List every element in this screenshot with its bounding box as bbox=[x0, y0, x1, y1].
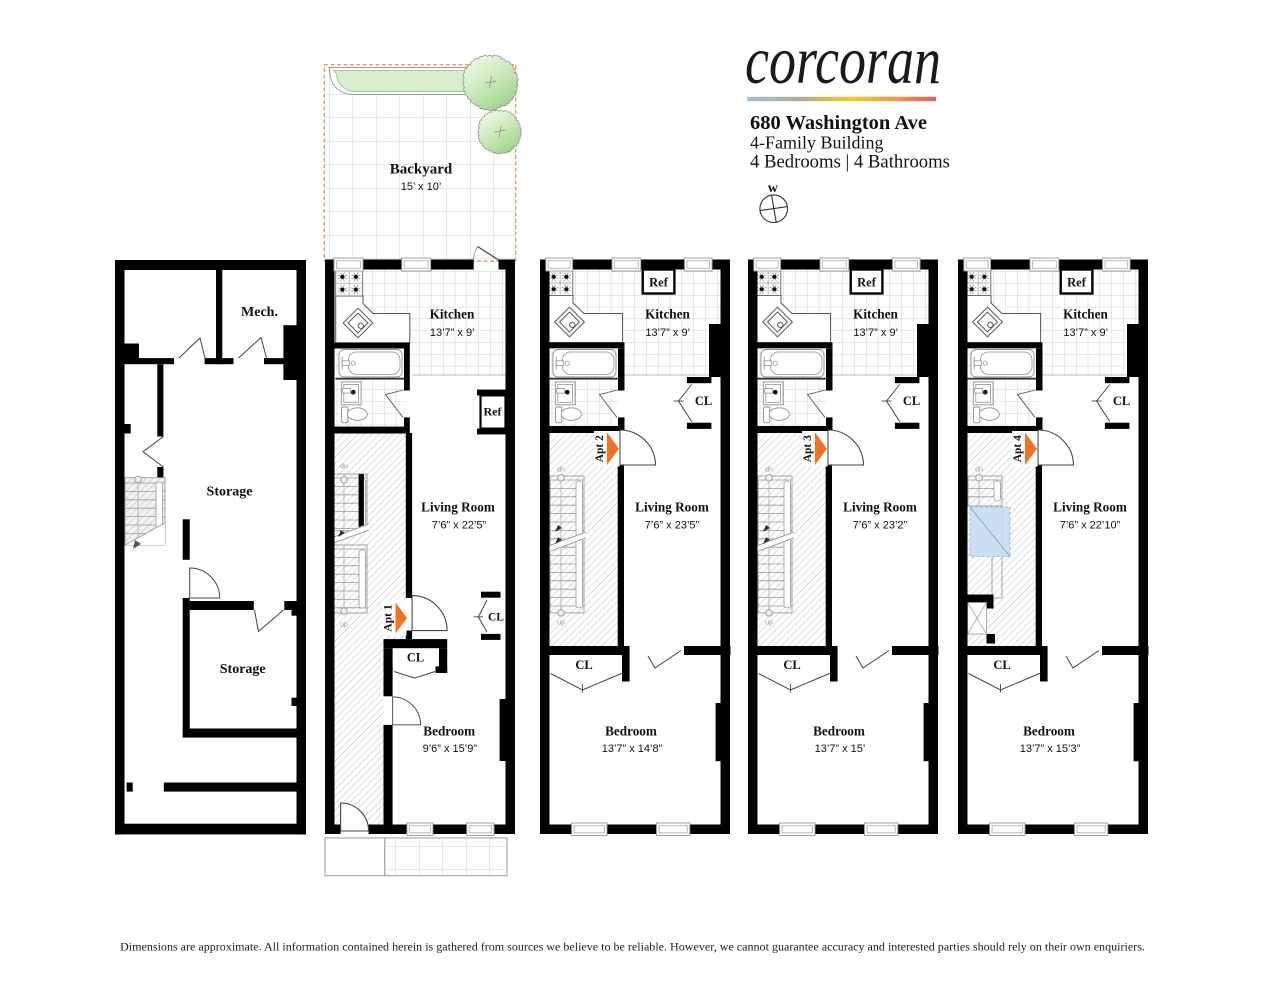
svg-text:7’6” x 22’5”: 7’6” x 22’5” bbox=[432, 520, 487, 532]
svg-text:CL: CL bbox=[575, 658, 592, 672]
svg-text:4-Family Building: 4-Family Building bbox=[750, 133, 884, 153]
svg-text:Bedroom: Bedroom bbox=[423, 724, 475, 739]
svg-text:13’7” x 9’: 13’7” x 9’ bbox=[1063, 327, 1108, 339]
svg-text:13’7” x 9’: 13’7” x 9’ bbox=[853, 327, 898, 339]
svg-text:Ref: Ref bbox=[649, 276, 669, 290]
svg-text:up: up bbox=[557, 620, 565, 627]
svg-text:corcoran: corcoran bbox=[745, 22, 941, 98]
svg-text:Kitchen: Kitchen bbox=[853, 307, 898, 322]
svg-text:13’7” x 9’: 13’7” x 9’ bbox=[430, 327, 475, 339]
svg-text:Ref: Ref bbox=[484, 405, 503, 419]
svg-text:4 Bedrooms | 4 Bathrooms: 4 Bedrooms | 4 Bathrooms bbox=[750, 152, 950, 173]
svg-text:CL: CL bbox=[903, 394, 920, 408]
svg-text:13’7” x 15’: 13’7” x 15’ bbox=[815, 743, 866, 755]
svg-text:Backyard: Backyard bbox=[390, 162, 453, 178]
svg-text:Living Room: Living Room bbox=[421, 500, 495, 515]
svg-text:up: up bbox=[765, 620, 773, 627]
svg-text:Kitchen: Kitchen bbox=[430, 307, 475, 322]
svg-text:Kitchen: Kitchen bbox=[645, 307, 690, 322]
svg-text:Apt 4: Apt 4 bbox=[1012, 435, 1024, 462]
svg-text:CL: CL bbox=[695, 394, 712, 408]
svg-text:CL: CL bbox=[1113, 394, 1130, 408]
svg-text:Living Room: Living Room bbox=[635, 500, 709, 515]
svg-text:7’6” x 23’2”: 7’6” x 23’2” bbox=[853, 520, 908, 532]
svg-text:13’7” x 14’8”: 13’7” x 14’8” bbox=[602, 743, 663, 755]
svg-text:CL: CL bbox=[488, 612, 504, 624]
svg-text:13’7” x 9’: 13’7” x 9’ bbox=[645, 327, 690, 339]
svg-text:Storage: Storage bbox=[207, 485, 253, 500]
svg-text:CL: CL bbox=[407, 651, 424, 665]
svg-text:7’6” x 23’5”: 7’6” x 23’5” bbox=[645, 520, 700, 532]
svg-text:Dimensions are approximate. Al: Dimensions are approximate. All informat… bbox=[120, 940, 1145, 954]
svg-text:Bedroom: Bedroom bbox=[1023, 724, 1075, 739]
svg-text:9’6” x 15’9”: 9’6” x 15’9” bbox=[423, 743, 478, 755]
svg-text:Apt 3: Apt 3 bbox=[802, 435, 814, 462]
svg-text:Kitchen: Kitchen bbox=[1063, 307, 1108, 322]
svg-text:w: w bbox=[768, 181, 779, 196]
svg-text:Mech.: Mech. bbox=[241, 305, 278, 320]
svg-text:Ref: Ref bbox=[857, 276, 877, 290]
svg-text:dn: dn bbox=[765, 467, 773, 474]
svg-text:15’ x 10’: 15’ x 10’ bbox=[401, 181, 442, 193]
svg-text:Living Room: Living Room bbox=[843, 500, 917, 515]
svg-text:Bedroom: Bedroom bbox=[813, 724, 865, 739]
svg-text:Living Room: Living Room bbox=[1053, 500, 1127, 515]
svg-text:up: up bbox=[340, 622, 348, 629]
svg-text:13’7” x 15’3”: 13’7” x 15’3” bbox=[1020, 743, 1081, 755]
svg-text:Apt 1: Apt 1 bbox=[383, 604, 395, 631]
svg-text:CL: CL bbox=[993, 658, 1010, 672]
svg-text:dn: dn bbox=[557, 467, 565, 474]
svg-text:dn: dn bbox=[975, 467, 983, 474]
svg-text:680 Washington Ave: 680 Washington Ave bbox=[750, 112, 927, 134]
svg-text:Storage: Storage bbox=[220, 662, 266, 677]
svg-text:Apt 2: Apt 2 bbox=[594, 435, 606, 462]
svg-text:CL: CL bbox=[783, 658, 800, 672]
svg-text:Bedroom: Bedroom bbox=[605, 724, 657, 739]
svg-text:7’6” x 22’10”: 7’6” x 22’10” bbox=[1060, 520, 1121, 532]
svg-text:dn: dn bbox=[340, 464, 348, 471]
svg-text:Ref: Ref bbox=[1067, 276, 1087, 290]
